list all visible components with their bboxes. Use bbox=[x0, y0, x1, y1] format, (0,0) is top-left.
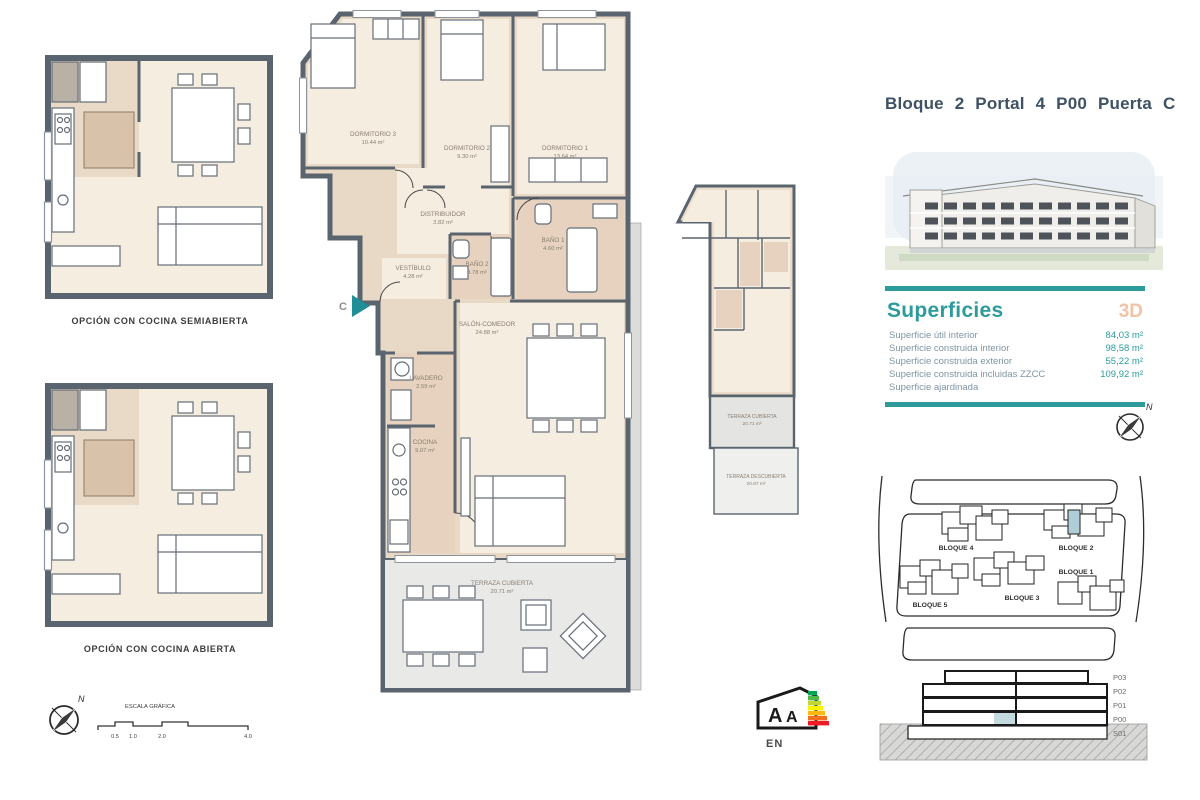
bloque-4-cluster bbox=[942, 506, 1008, 541]
badge-3d: 3D bbox=[1119, 301, 1143, 323]
room-area: 4.28 m² bbox=[403, 274, 423, 280]
superficies-row: Superficie construida exterior 55,22 m² bbox=[889, 355, 1143, 368]
room-area: 3.82 m² bbox=[433, 220, 453, 226]
superficies-row: Superficie construida incluidas ZZCC 109… bbox=[889, 368, 1143, 381]
room-label: COCINA bbox=[413, 439, 438, 446]
north-letter: N bbox=[1146, 402, 1153, 412]
energy-certificate-icon: A A bbox=[752, 684, 832, 734]
north-letter: N bbox=[78, 694, 85, 704]
room-label: DORMITORIO 1 bbox=[542, 145, 589, 152]
key-plan-bath bbox=[740, 242, 760, 286]
bloque-3-cluster bbox=[974, 552, 1044, 586]
neighbour-strip bbox=[630, 223, 641, 690]
scale-tick: 4.0 bbox=[244, 734, 252, 740]
row-label: Superficie construida incluidas ZZCC bbox=[889, 368, 1045, 381]
energy-letter-1: A bbox=[768, 705, 782, 727]
room-area: 4.60 m² bbox=[543, 246, 563, 252]
building-render bbox=[885, 146, 1163, 286]
room-label: DORMITORIO 3 bbox=[350, 131, 397, 138]
bloque-1-cluster bbox=[1058, 576, 1124, 610]
section-label-s01: S01 bbox=[1113, 729, 1126, 738]
compass-bottomleft: N bbox=[38, 690, 94, 746]
room-label: BAÑO 2 bbox=[465, 259, 489, 268]
superficies-heading: Superficies bbox=[887, 299, 1004, 323]
option-plan-abierta bbox=[42, 380, 277, 630]
option-caption-semiabierta: OPCIÓN CON COCINA SEMIABIERTA bbox=[40, 316, 280, 326]
row-label: Superficie ajardinada bbox=[889, 381, 978, 394]
room-label: DORMITORIO 2 bbox=[444, 145, 491, 152]
superficies-row: Superficie útil interior 84,03 m² bbox=[889, 329, 1143, 342]
energy-rating-bars bbox=[808, 691, 829, 725]
scale-tick: 0.5 bbox=[111, 734, 119, 740]
room-area: 10.44 m² bbox=[362, 140, 385, 146]
row-label: Superficie construida exterior bbox=[889, 355, 1012, 368]
page-title: Bloque 2 Portal 4 P00 Puerta C bbox=[885, 94, 1185, 114]
section-label-p03: P03 bbox=[1113, 673, 1126, 682]
room-area: 3.78 m² bbox=[467, 270, 487, 276]
bloque-2-cluster bbox=[1044, 504, 1112, 538]
superficies-row: Superficie ajardinada bbox=[889, 381, 1143, 394]
room-label: SALÓN-COMEDOR bbox=[459, 319, 516, 328]
scale-bar: ESCALA GRÁFICA 0.5 1.0 2.0 4.0 bbox=[90, 696, 270, 744]
room-area: 24.88 m² bbox=[476, 330, 499, 336]
level-S01 bbox=[908, 726, 1107, 739]
main-floor-plan: C DORMITORIO 3 10.44 m² DORMITORIO 2 9.3… bbox=[295, 8, 645, 723]
superficies-rows: Superficie útil interior 84,03 m² Superf… bbox=[885, 327, 1145, 402]
terraza-cubierta-area: 20.71 m² bbox=[743, 421, 762, 427]
superficies-panel: Superficies 3D Superficie útil interior … bbox=[885, 286, 1145, 407]
room-label: BAÑO 1 bbox=[541, 235, 565, 244]
row-value: 55,22 m² bbox=[1106, 355, 1144, 368]
scale-tick: 1.0 bbox=[129, 734, 137, 740]
plan-sheet: C DORMITORIO 3 10.44 m² DORMITORIO 2 9.3… bbox=[0, 0, 1200, 800]
key-plan-bath2 bbox=[764, 242, 788, 272]
section-label-p00: P00 bbox=[1113, 715, 1126, 724]
room-label: DISTRIBUIDOR bbox=[420, 211, 466, 218]
row-value: 84,03 m² bbox=[1106, 329, 1144, 342]
highlighted-unit bbox=[1068, 510, 1080, 534]
row-label: Superficie útil interior bbox=[889, 329, 978, 342]
bloque-3-label: BLOQUE 3 bbox=[1005, 595, 1040, 602]
compass-topright: N bbox=[1106, 398, 1162, 450]
row-value: 109,92 m² bbox=[1100, 368, 1143, 381]
terraza-cubierta-label: TERRAZA CUBIERTA bbox=[727, 414, 777, 420]
key-plan: TERRAZA CUBIERTA 20.71 m² TERRAZA DESCUB… bbox=[668, 180, 803, 520]
scale-tick: 2.0 bbox=[158, 734, 166, 740]
site-plan: BLOQUE 4 BLOQUE 2 BLOQUE 1 BLOQUE 3 BLOQ… bbox=[872, 470, 1182, 668]
key-terraza-descubierta bbox=[714, 448, 798, 514]
bloque-5-cluster bbox=[900, 560, 968, 594]
option-plan-semiabierta bbox=[42, 52, 277, 302]
room-area: 13.64 m² bbox=[554, 154, 577, 160]
room-label: TERRAZA CUBIERTA bbox=[471, 580, 534, 587]
section-diagram: P03 P02 P01 P00 S01 bbox=[870, 646, 1180, 764]
superficies-row: Superficie construida interior 98,58 m² bbox=[889, 342, 1143, 355]
room-area: 9.07 m² bbox=[415, 448, 435, 454]
row-value: 98,58 m² bbox=[1106, 342, 1144, 355]
bloque-2-label: BLOQUE 2 bbox=[1059, 545, 1094, 552]
terraza-descubierta-area: 20.87 m² bbox=[747, 481, 766, 487]
room-label: VESTÍBULO bbox=[395, 263, 430, 272]
key-plan-kitchen bbox=[716, 290, 742, 328]
bloque-4-label: BLOQUE 4 bbox=[939, 545, 974, 552]
section-label-p02: P02 bbox=[1113, 687, 1126, 696]
highlighted-unit-section bbox=[994, 713, 1016, 724]
room-area: 9.30 m² bbox=[457, 154, 477, 160]
room-label: LAVADERO bbox=[409, 375, 442, 382]
energy-lang-label: EN bbox=[766, 738, 783, 750]
room-area: 20.71 m² bbox=[491, 589, 514, 595]
energy-letter-2: A bbox=[786, 709, 798, 726]
scale-bar-label: ESCALA GRÁFICA bbox=[125, 703, 175, 710]
scale-bar-line bbox=[98, 722, 248, 730]
row-label: Superficie construida interior bbox=[889, 342, 1009, 355]
section-label-p01: P01 bbox=[1113, 701, 1126, 710]
terraza-descubierta-label: TERRAZA DESCUBIERTA bbox=[726, 474, 786, 480]
option-caption-abierta: OPCIÓN CON COCINA ABIERTA bbox=[40, 644, 280, 654]
bloque-1-label: BLOQUE 1 bbox=[1059, 569, 1094, 576]
entrance-letter: C bbox=[339, 301, 347, 313]
room-area: 2.59 m² bbox=[416, 384, 436, 390]
bloque-5-label: BLOQUE 5 bbox=[913, 602, 948, 609]
